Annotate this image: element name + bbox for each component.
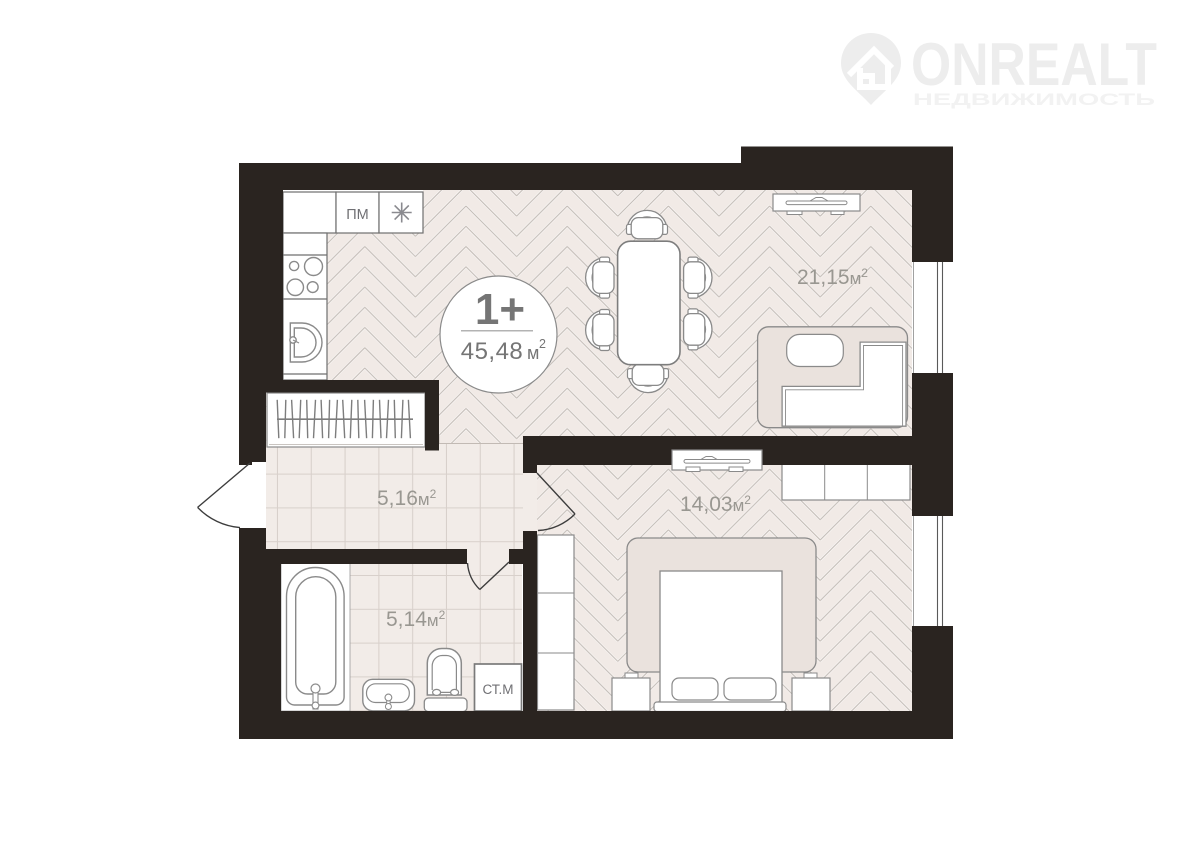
- svg-text:НЕДВИЖИМОСТЬ: НЕДВИЖИМОСТЬ: [913, 90, 1155, 109]
- svg-text:ONREALT: ONREALT: [911, 31, 1157, 98]
- svg-text:1+: 1+: [475, 285, 525, 334]
- svg-text:21,15м2: 21,15м2: [797, 266, 868, 289]
- svg-text:5,14м2: 5,14м2: [386, 608, 446, 631]
- svg-text:5,16м2: 5,16м2: [377, 487, 437, 510]
- svg-text:ПМ: ПМ: [346, 207, 369, 223]
- svg-text:СТ.М: СТ.М: [482, 682, 513, 697]
- svg-text:14,03м2: 14,03м2: [680, 493, 751, 516]
- svg-text:м: м: [527, 343, 539, 363]
- svg-text:2: 2: [539, 337, 546, 351]
- svg-text:45,48: 45,48: [461, 338, 524, 365]
